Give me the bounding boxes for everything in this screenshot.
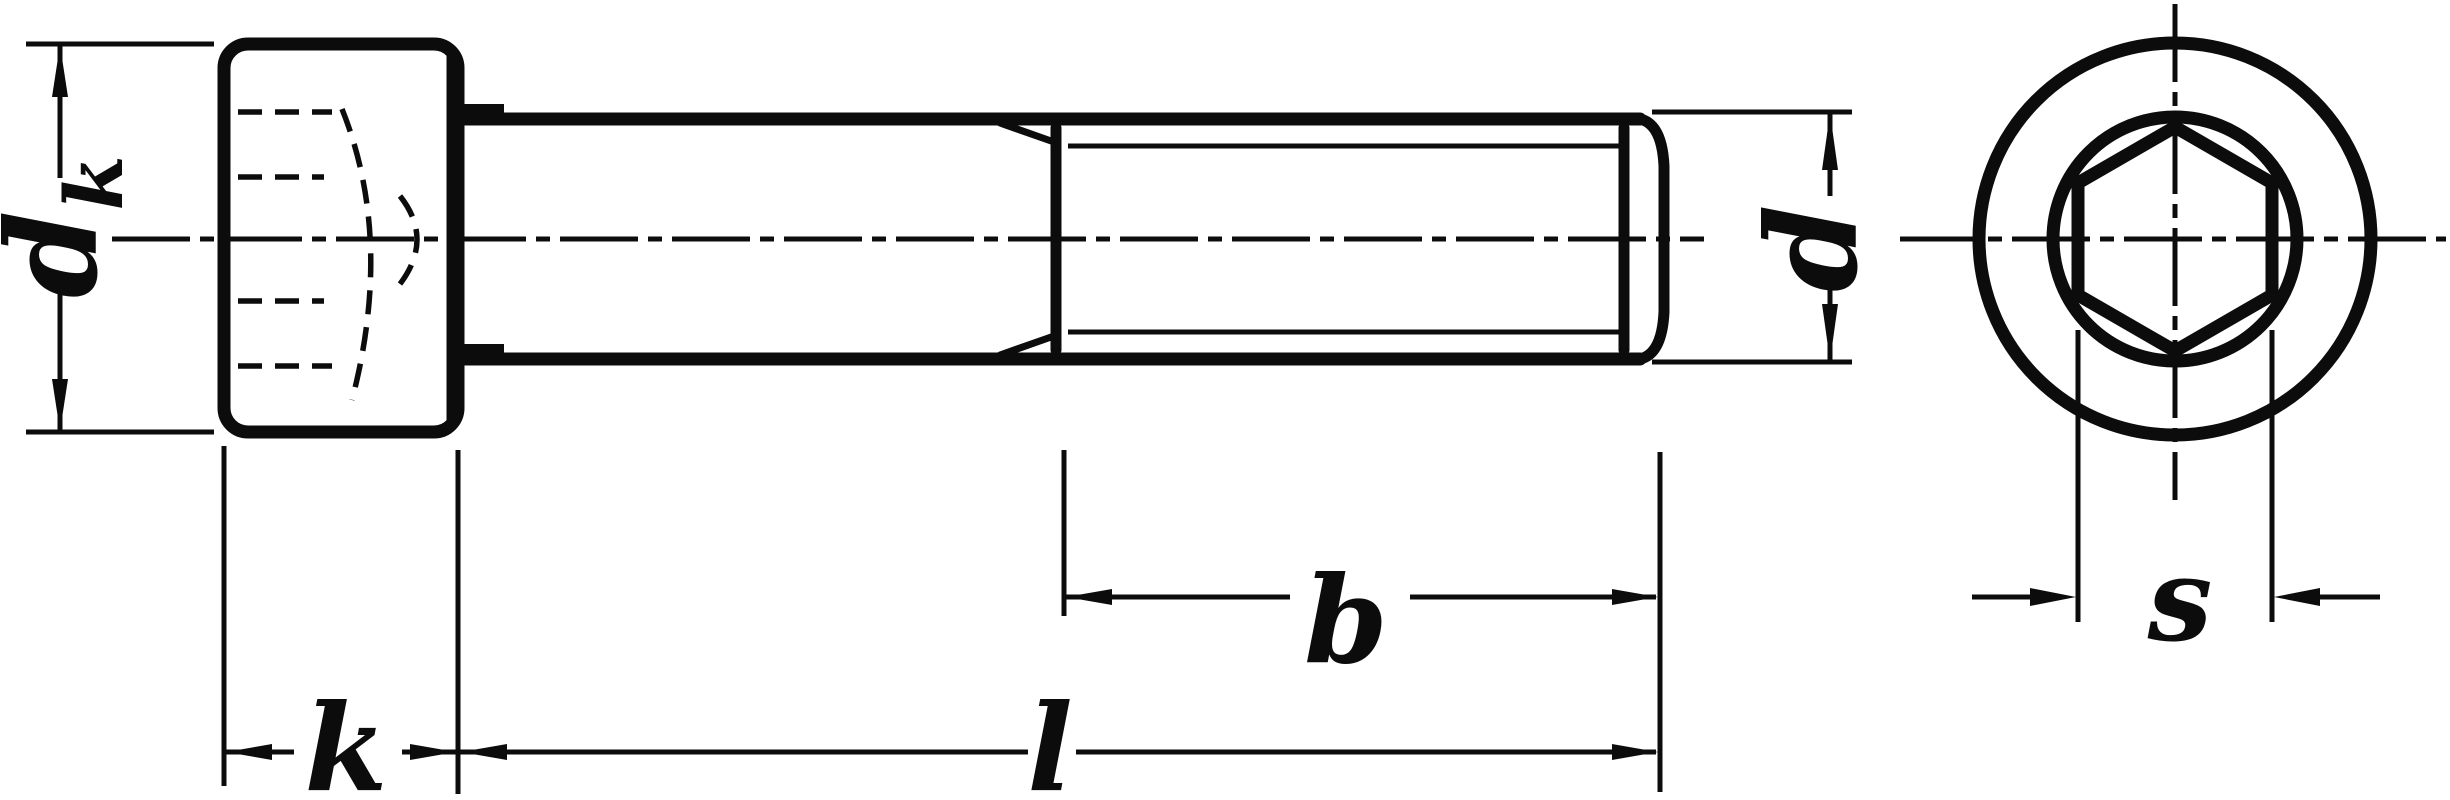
s-arrow-right	[2274, 588, 2320, 606]
l-arrow-left	[461, 744, 507, 760]
thread-runout-bottom	[1000, 336, 1054, 355]
k-label: k	[304, 678, 387, 800]
k-arrow-left	[226, 744, 272, 760]
socket-bottom-hidden-arc	[342, 109, 371, 400]
dimension-thread-length: b	[1064, 450, 1658, 691]
b-arrow-left	[1066, 589, 1112, 605]
thread-runout-top	[1000, 123, 1054, 142]
k-arrow-right	[410, 744, 456, 760]
d-arrow-up	[1822, 113, 1838, 170]
dk-arrow-down	[52, 379, 68, 431]
d-label: d	[1740, 205, 1886, 292]
d-arrow-down	[1822, 304, 1838, 361]
l-arrow-right	[1612, 744, 1658, 760]
dimension-head-height: k	[224, 446, 458, 800]
dk-label: dk	[0, 155, 141, 298]
l-label: l	[1027, 678, 1073, 800]
dk-arrow-up	[52, 45, 68, 97]
screw-technical-drawing-page: dk k l b	[0, 0, 2450, 800]
s-label: s	[2147, 533, 2213, 668]
dimension-total-length: l	[460, 452, 1660, 800]
hex-socket-hidden-lines	[238, 109, 417, 400]
s-arrow-left	[2030, 588, 2076, 606]
b-arrow-right	[1612, 589, 1658, 605]
b-label: b	[1304, 550, 1388, 691]
screw-technical-drawing: dk k l b	[0, 0, 2450, 800]
